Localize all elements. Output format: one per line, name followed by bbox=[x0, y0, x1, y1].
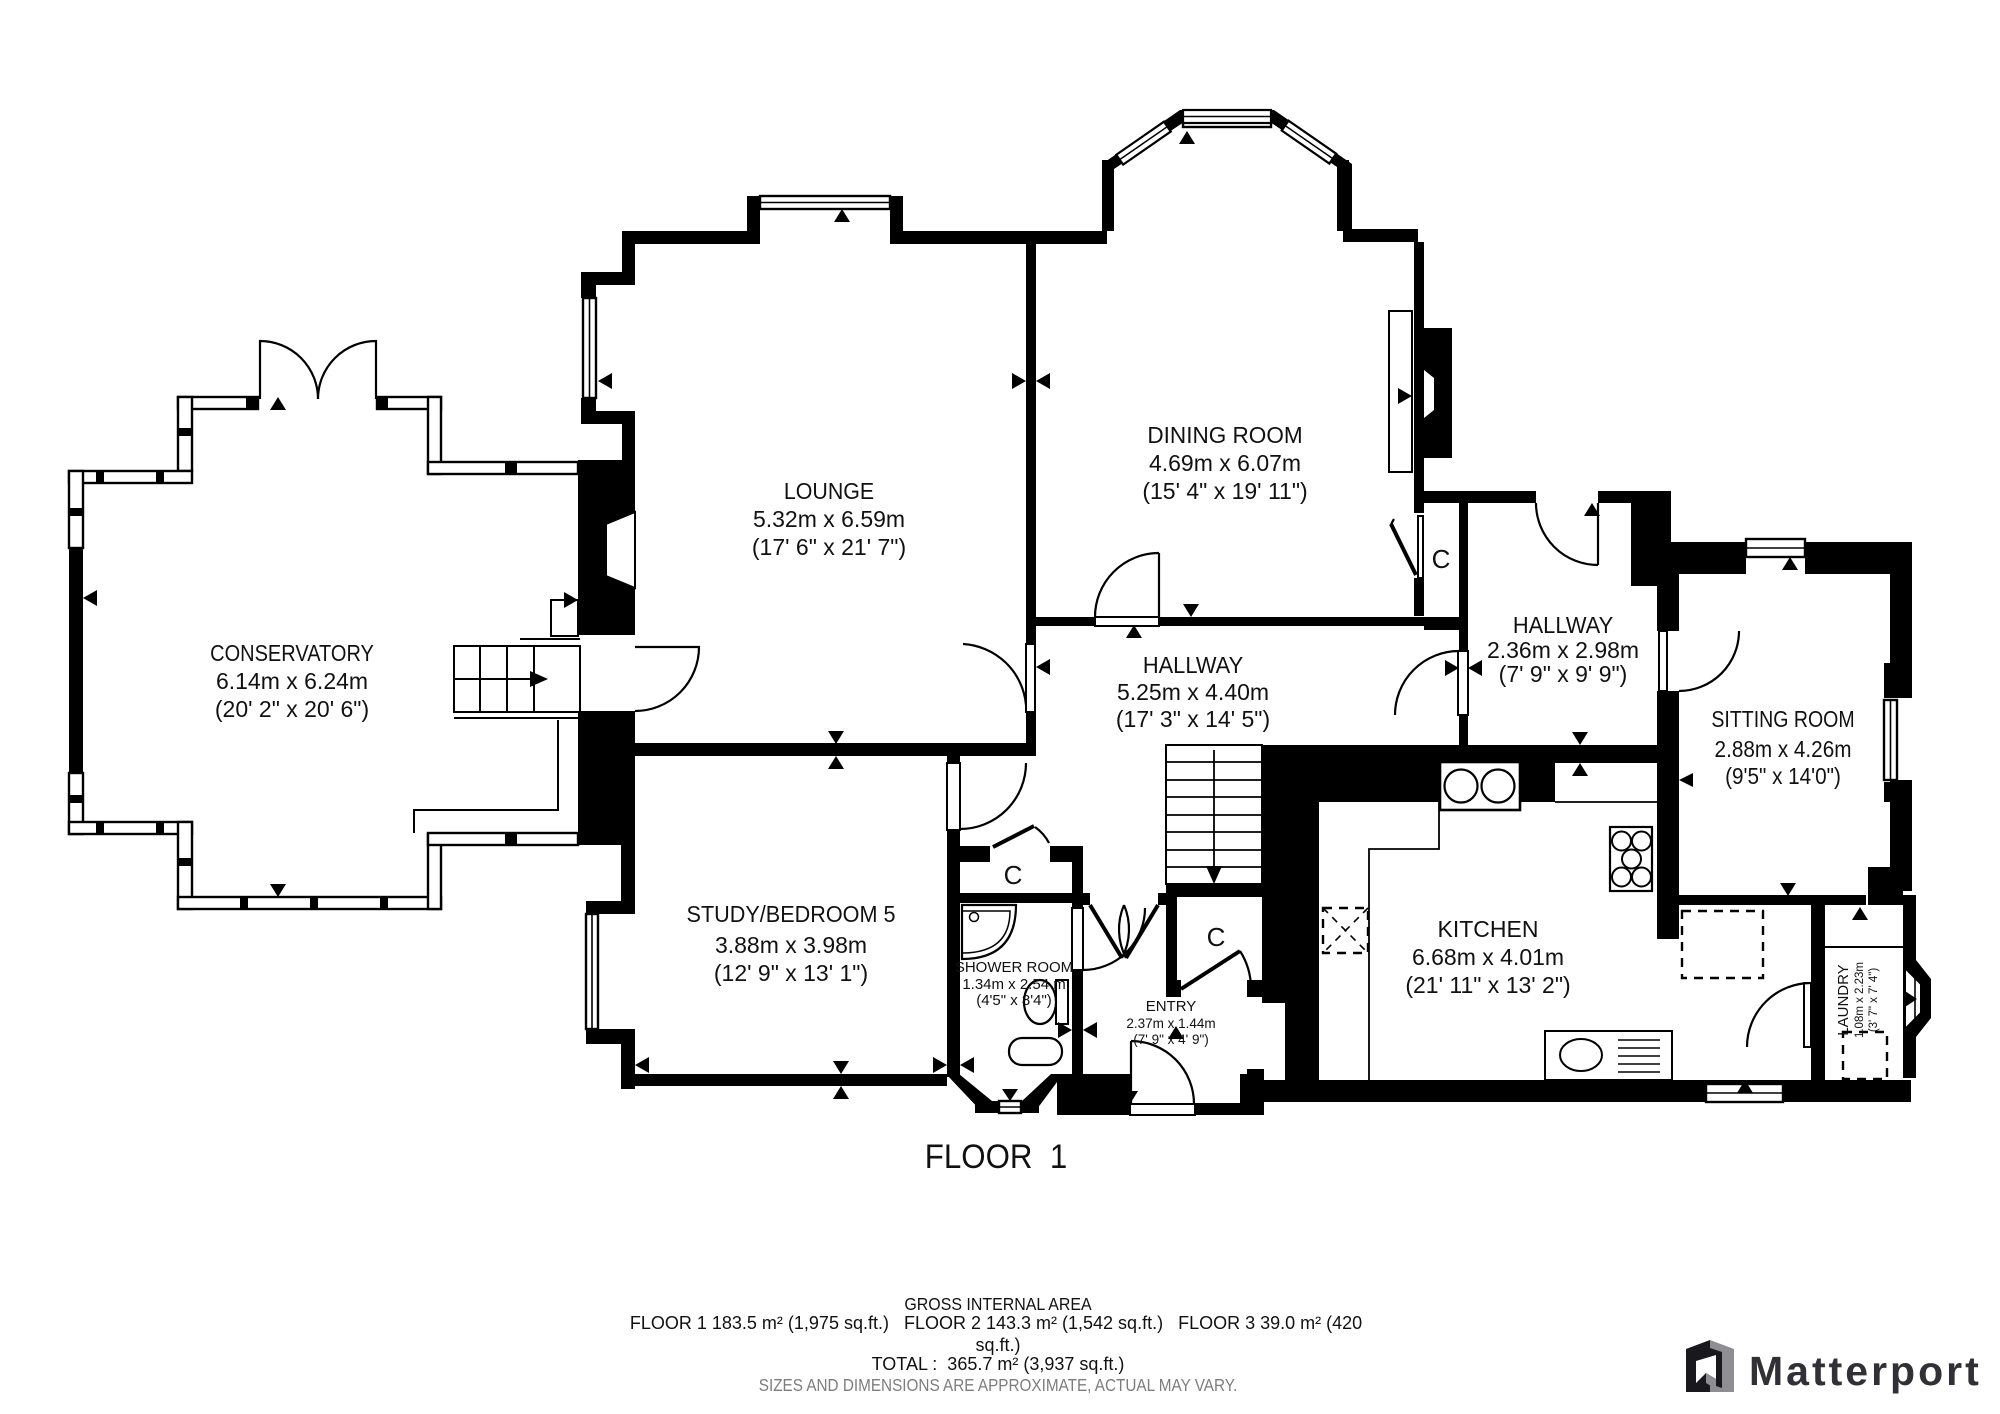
svg-text:(9'5" x 14'0"): (9'5" x 14'0") bbox=[1725, 763, 1841, 789]
svg-text:(7' 9" x 9' 9"): (7' 9" x 9' 9") bbox=[1499, 661, 1628, 687]
svg-text:HALLWAY: HALLWAY bbox=[1143, 652, 1243, 678]
svg-text:2.88m x 4.26m: 2.88m x 4.26m bbox=[1715, 736, 1852, 762]
svg-text:LOUNGE: LOUNGE bbox=[784, 478, 874, 504]
svg-text:2.37m x 1.44m: 2.37m x 1.44m bbox=[1126, 1016, 1215, 1031]
svg-text:C: C bbox=[1207, 922, 1226, 952]
svg-text:5.25m x 4.40m: 5.25m x 4.40m bbox=[1117, 679, 1269, 705]
svg-text:FLOOR 1: FLOOR 1 bbox=[925, 1137, 1067, 1176]
svg-text:SITTING ROOM: SITTING ROOM bbox=[1711, 707, 1854, 733]
svg-text:Matterport: Matterport bbox=[1749, 1348, 1982, 1394]
svg-text:CONSERVATORY: CONSERVATORY bbox=[210, 640, 374, 667]
svg-text:HALLWAY: HALLWAY bbox=[1513, 612, 1613, 638]
svg-text:C: C bbox=[1432, 544, 1451, 574]
svg-text:(12' 9" x 13' 1"): (12' 9" x 13' 1") bbox=[714, 960, 868, 986]
svg-text:(17' 3" x 14' 5"): (17' 3" x 14' 5") bbox=[1116, 706, 1270, 732]
svg-text:2.36m x 2.98m: 2.36m x 2.98m bbox=[1487, 637, 1639, 663]
svg-text:ENTRY: ENTRY bbox=[1146, 998, 1197, 1015]
svg-text:LAUNDRY: LAUNDRY bbox=[1835, 964, 1852, 1035]
svg-text:STUDY/BEDROOM 5: STUDY/BEDROOM 5 bbox=[687, 901, 896, 927]
svg-text:1.34m x 2.54 m: 1.34m x 2.54 m bbox=[962, 976, 1065, 993]
svg-text:(20' 2" x 20' 6"): (20' 2" x 20' 6") bbox=[215, 696, 369, 722]
svg-text:GROSS INTERNAL AREA: GROSS INTERNAL AREA bbox=[904, 1294, 1092, 1314]
svg-text:4.69m x 6.07m: 4.69m x 6.07m bbox=[1149, 450, 1301, 476]
svg-text:(7' 9" x 4' 9"): (7' 9" x 4' 9") bbox=[1133, 1032, 1209, 1047]
svg-text:DINING ROOM: DINING ROOM bbox=[1147, 422, 1302, 448]
svg-text:5.32m x 6.59m: 5.32m x 6.59m bbox=[753, 506, 905, 532]
svg-text:sq.ft.): sq.ft.) bbox=[975, 1335, 1020, 1355]
svg-text:(4'5" x 8'4"): (4'5" x 8'4") bbox=[976, 992, 1052, 1009]
svg-text:(15' 4" x 19' 11"): (15' 4" x 19' 11") bbox=[1142, 478, 1307, 504]
svg-text:FLOOR 1 183.5 m² (1,975 sq.ft.: FLOOR 1 183.5 m² (1,975 sq.ft.) FLOOR 2 … bbox=[630, 1313, 1362, 1333]
svg-text:SIZES AND DIMENSIONS ARE APPRO: SIZES AND DIMENSIONS ARE APPROXIMATE, AC… bbox=[759, 1375, 1237, 1395]
svg-text:(17' 6" x 21' 7"): (17' 6" x 21' 7") bbox=[752, 534, 906, 560]
svg-text:6.14m x 6.24m: 6.14m x 6.24m bbox=[216, 668, 368, 694]
svg-text:C: C bbox=[1004, 860, 1023, 890]
svg-text:SHOWER ROOM: SHOWER ROOM bbox=[955, 959, 1073, 976]
svg-text:3.88m x 3.98m: 3.88m x 3.98m bbox=[715, 932, 867, 958]
svg-text:TOTAL : 365.7 m² (3,937 sq.ft: TOTAL : 365.7 m² (3,937 sq.ft.) bbox=[872, 1354, 1125, 1374]
svg-text:(21' 11" x 13' 2"): (21' 11" x 13' 2") bbox=[1405, 972, 1570, 998]
svg-text:(3' 7" x 7' 4"): (3' 7" x 7' 4") bbox=[1868, 968, 1880, 1032]
svg-text:1.08m x 2.23m: 1.08m x 2.23m bbox=[1854, 962, 1866, 1038]
svg-text:KITCHEN: KITCHEN bbox=[1438, 916, 1539, 942]
svg-text:6.68m x 4.01m: 6.68m x 4.01m bbox=[1412, 944, 1564, 970]
